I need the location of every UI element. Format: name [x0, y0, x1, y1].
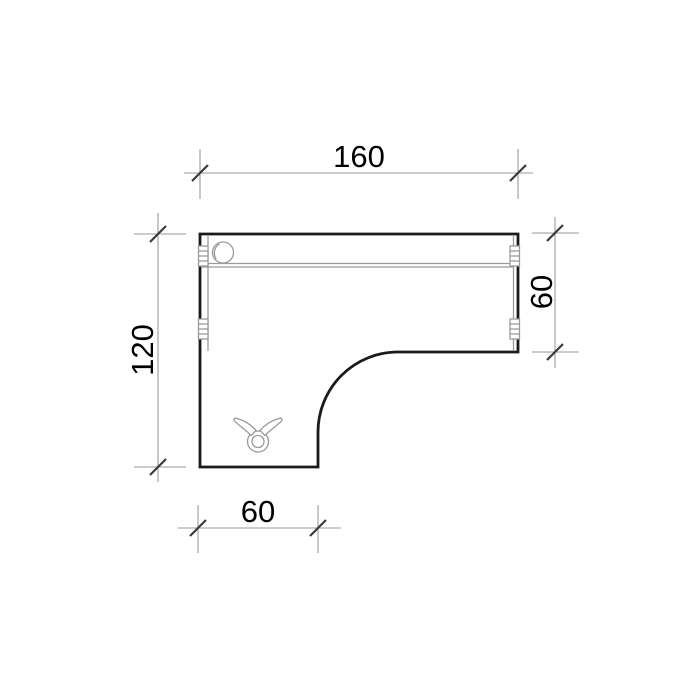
- panel-connector-symbol: [199, 319, 209, 339]
- desk-plan: [199, 234, 520, 467]
- panel-connector-symbol: [199, 246, 209, 266]
- panel-connector-symbol: [510, 246, 520, 266]
- dimension-bottom: 60: [178, 494, 341, 553]
- panel-connector-symbol: [510, 319, 520, 339]
- dimension-top: 160: [184, 139, 533, 199]
- dim-label-left: 120: [125, 324, 160, 376]
- dim-label-top: 160: [333, 139, 385, 174]
- dim-label-right: 60: [524, 275, 559, 309]
- drawing-area: 160 60 120 60: [0, 0, 700, 700]
- technical-drawing-canvas: 160 60 120 60: [0, 0, 700, 700]
- dimension-right: 60: [524, 217, 579, 368]
- dimension-left: 120: [125, 213, 186, 482]
- dim-label-bottom: 60: [241, 494, 275, 529]
